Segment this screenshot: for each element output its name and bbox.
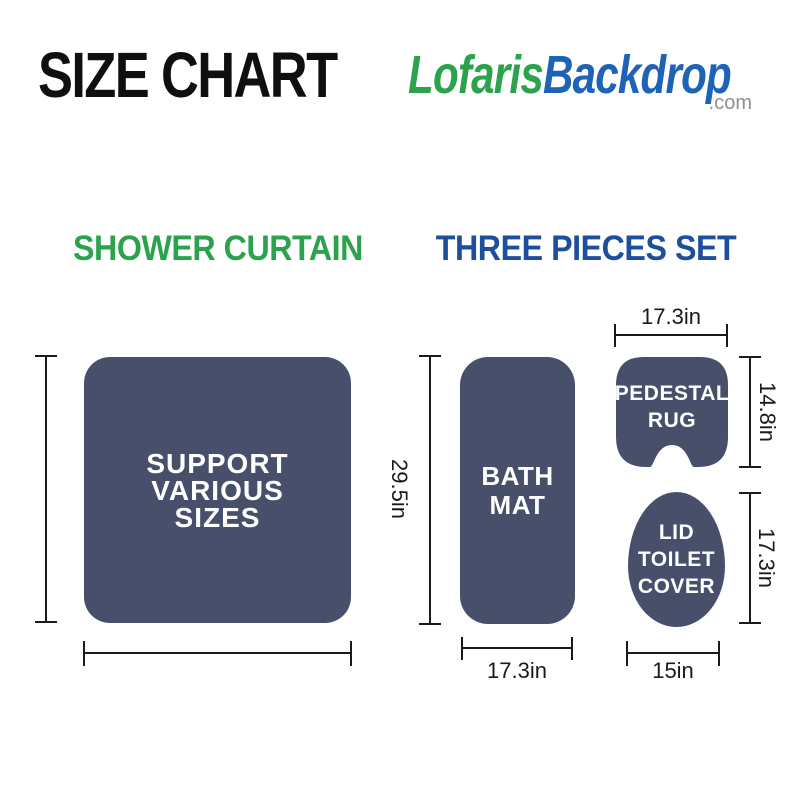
bath-mat-height-line (419, 356, 441, 624)
size-chart-page: SIZE CHART LofarisBackdrop .com SHOWER C… (0, 0, 800, 800)
shower-height-line (35, 356, 57, 622)
lid-toilet-cover-height-label: 17.3in (753, 528, 779, 588)
bath-mat-height-label: 29.5in (386, 459, 412, 519)
bath-mat-width-line (462, 637, 572, 660)
bath-mat-width-label: 17.3in (487, 658, 547, 684)
lid-toilet-cover-width-label: 15in (652, 658, 694, 684)
pedestal-rug-height-label: 14.8in (754, 382, 780, 442)
pedestal-rug-width-label: 17.3in (641, 304, 701, 330)
shower-width-line (84, 641, 351, 666)
